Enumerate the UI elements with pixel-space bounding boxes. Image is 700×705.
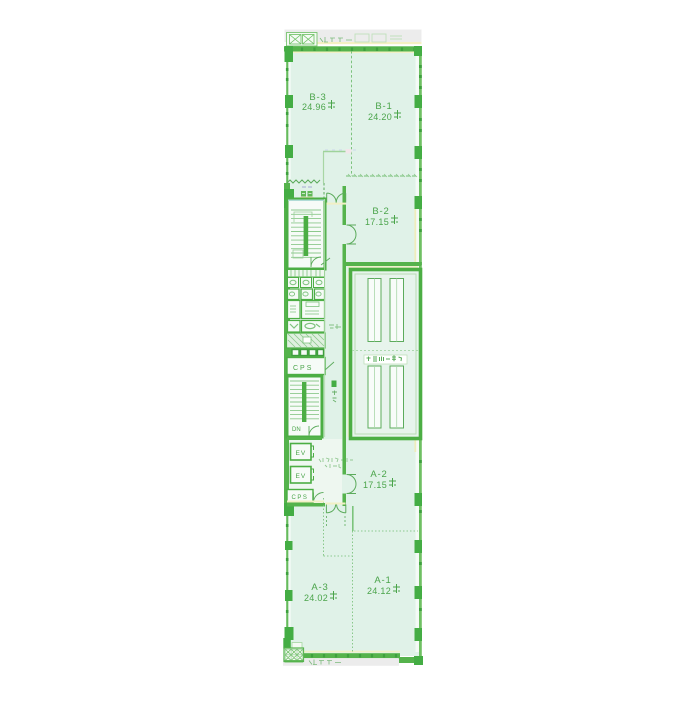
svg-text:24.20: 24.20 bbox=[368, 112, 392, 122]
svg-text:B-1: B-1 bbox=[375, 101, 392, 112]
svg-text:17.15: 17.15 bbox=[363, 480, 387, 490]
svg-text:A-3: A-3 bbox=[311, 582, 328, 593]
svg-text:A-2: A-2 bbox=[370, 469, 387, 480]
svg-text:24.12: 24.12 bbox=[367, 586, 391, 596]
svg-text:DN: DN bbox=[292, 427, 301, 433]
svg-text:EV: EV bbox=[296, 450, 307, 457]
svg-text:24.02: 24.02 bbox=[304, 593, 328, 603]
svg-text:EV: EV bbox=[296, 473, 307, 480]
svg-text:24.96: 24.96 bbox=[302, 102, 326, 112]
svg-text:17.15: 17.15 bbox=[365, 217, 389, 227]
svg-text:B-2: B-2 bbox=[372, 206, 389, 217]
svg-text:CPS: CPS bbox=[292, 495, 309, 501]
svg-text:A-1: A-1 bbox=[374, 575, 391, 586]
svg-text:CPS: CPS bbox=[293, 365, 313, 372]
